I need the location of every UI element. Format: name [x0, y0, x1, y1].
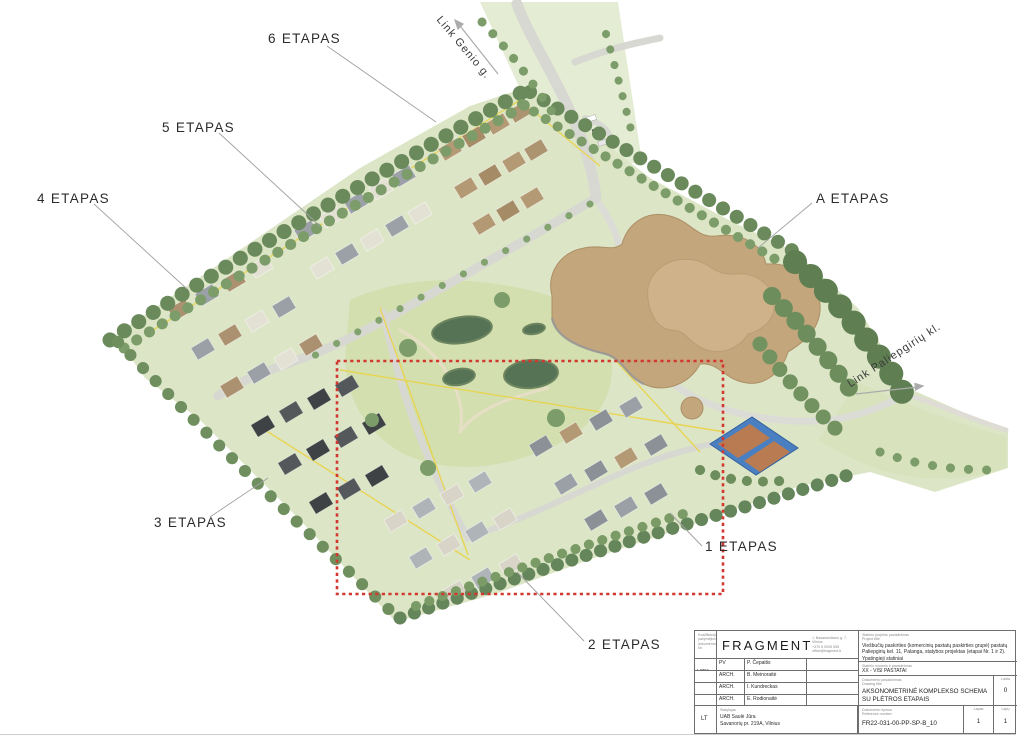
revision-value: 0 — [994, 687, 1017, 695]
signature-cell — [807, 695, 858, 706]
language-code: LT — [701, 716, 708, 722]
reference-label-en: Reference number — [862, 712, 960, 716]
phase-label-a: A ETAPAS — [816, 191, 890, 206]
signature-cell — [807, 671, 858, 683]
role-cell: ARCH. — [717, 683, 745, 695]
revision-label: Laida — [994, 676, 1017, 681]
phase-label-4: 4 ETAPAS — [37, 191, 110, 206]
phase-label-2: 2 ETAPAS — [588, 637, 661, 652]
cert-no-cell: A 2051 — [695, 659, 717, 671]
phase-label-1: 1 ETAPAS — [705, 539, 778, 554]
name-4: E. Rodionaitė — [745, 695, 806, 704]
sheet-label: Lapas — [964, 706, 993, 711]
project-label-en: Project title — [862, 637, 1014, 641]
reference-cell: Dokumento žymuo Reference number FR22-03… — [858, 706, 964, 735]
fragment-logo: FRAGMENT — [722, 638, 813, 653]
name-1: P. Čepaitis — [745, 659, 806, 668]
drawing-label-en: Drawing title — [862, 682, 990, 686]
logo-contact: J. Basanavičiaus g. 7, Vilnius +370 6 92… — [812, 636, 858, 654]
role-1: PV — [717, 659, 744, 668]
name-3: I. Kundreckas — [745, 683, 806, 692]
name-cell: E. Rodionaitė — [745, 695, 807, 706]
sheets-label: Lapų — [994, 706, 1017, 711]
cert-label: Kvalifikacijos pažymėjimo dokumento Nr. — [698, 633, 713, 651]
name-cell: I. Kundreckas — [745, 683, 807, 695]
drawing-sheet: 6 ETAPAS 5 ETAPAS 4 ETAPAS A ETAPAS 3 ET… — [0, 0, 1024, 738]
sheet-frame-bottom-line — [0, 734, 1016, 735]
name-2: B. Meinoraitė — [745, 671, 806, 680]
sheets-value: 1 — [994, 718, 1017, 726]
building-title: XX - VISI PASTATAI — [862, 668, 1014, 675]
name-cell: P. Čepaitis — [745, 659, 807, 671]
title-block: Kvalifikacijos pažymėjimo dokumento Nr. … — [694, 630, 1016, 734]
role-cell: PV — [717, 659, 745, 671]
project-title: Viešbučių paskirties (komercinių pastatų… — [862, 643, 1014, 656]
contact-line-1: J. Basanavičiaus g. 7, Vilnius — [812, 636, 858, 645]
cert-empty-cell — [695, 683, 717, 695]
client-label: Statytojas — [720, 708, 854, 712]
signature-cell — [807, 659, 858, 671]
drawing-title-cell: Dokumento pavadinimas Drawing title AKSO… — [858, 676, 994, 706]
reference-number: FR22-031-00-PP-SP-B_10 — [862, 720, 960, 728]
phase-label-5: 5 ETAPAS — [162, 120, 235, 135]
phase-label-6: 6 ETAPAS — [268, 31, 341, 46]
logo-cell: FRAGMENT J. Basanavičiaus g. 7, Vilnius … — [717, 631, 858, 659]
sheet-cell: Lapas 1 — [964, 706, 994, 735]
contact-line-3: office@fragment.lt — [812, 649, 858, 653]
sheet-value: 1 — [964, 718, 993, 726]
role-2: ARCH. — [717, 671, 744, 680]
phase-label-3: 3 ETAPAS — [154, 515, 227, 530]
role-cell: ARCH. — [717, 671, 745, 683]
name-cell: B. Meinoraitė — [745, 671, 807, 683]
client-address: Savanorių pr. 219A, Vilnius — [720, 721, 854, 728]
cert-empty-cell — [695, 695, 717, 706]
role-3: ARCH. — [717, 683, 744, 692]
revision-cell: Laida 0 — [994, 676, 1017, 706]
project-title-cell: Statinio projekto pavadinimas Project ti… — [858, 631, 1017, 662]
sheets-cell: Lapų 1 — [994, 706, 1017, 735]
role-cell: ARCH. — [717, 695, 745, 706]
signature-cell — [807, 683, 858, 695]
cert-empty-cell — [695, 671, 717, 683]
role-4: ARCH. — [717, 695, 744, 704]
client-cell: Statytojas UAB Saulė Jūra Savanorių pr. … — [717, 706, 858, 735]
drawing-title: AKSONOMETRINĖ KOMPLEKSO SCHEMA SU PLĖTRO… — [862, 688, 990, 704]
language-cell: LT — [695, 706, 717, 735]
building-title-cell: Statinio numeris ir pavadinimas XX - VIS… — [858, 662, 1017, 676]
cert-label-cell: Kvalifikacijos pažymėjimo dokumento Nr. — [695, 631, 717, 659]
